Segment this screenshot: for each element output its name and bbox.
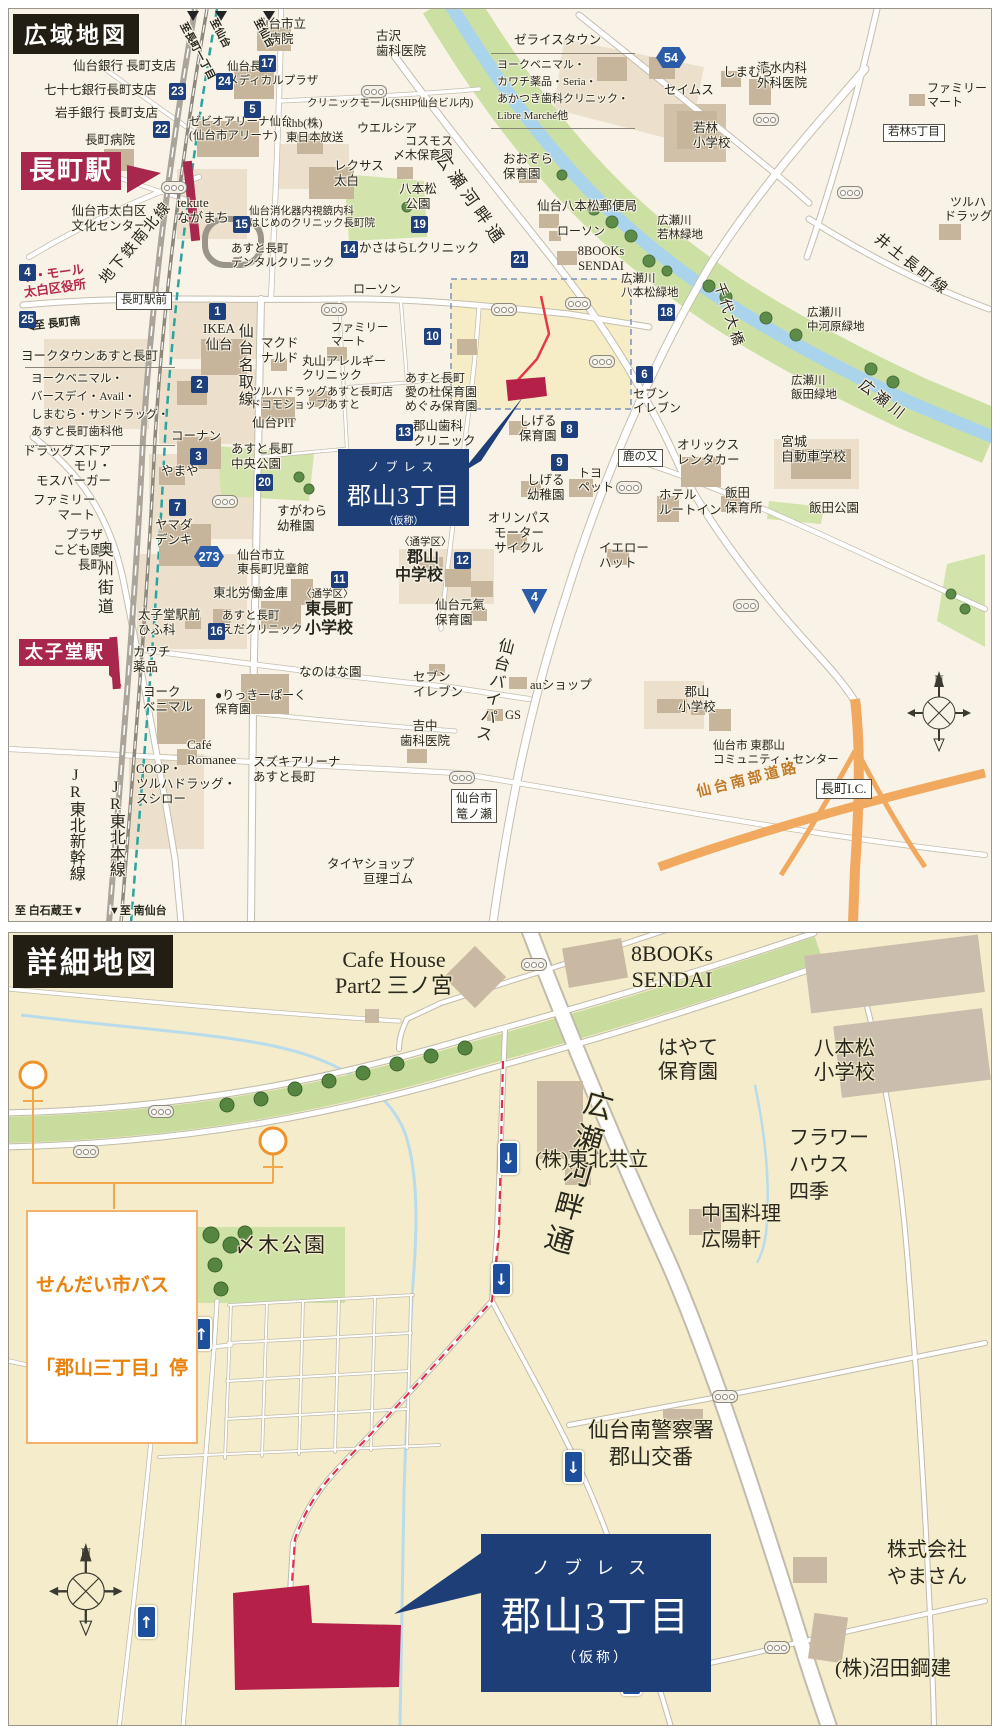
- map-label: ホテル ルートイン: [659, 488, 722, 518]
- map-label: 七十七銀行長町支店: [44, 83, 157, 98]
- map-label: 中学校: [395, 567, 443, 586]
- svg-text:N: N: [934, 672, 944, 687]
- map-label: セブン イレブン: [633, 387, 681, 415]
- map-number-badge: 24: [216, 73, 233, 90]
- map-label: 8BOOKs SENDAI: [571, 244, 631, 274]
- map-label: レクサス 太白: [334, 159, 384, 189]
- map-label: JR東北新幹線: [65, 767, 84, 881]
- map-label: ヨーク ベニマル: [143, 685, 193, 715]
- map-label: マクド ナルド: [261, 336, 299, 366]
- map-number-badge: 19: [411, 216, 428, 233]
- map-label: ●りっきーぱーく 保育園: [215, 688, 306, 716]
- traffic-signal-icon: [589, 355, 615, 368]
- traffic-signal-icon: [491, 303, 517, 316]
- map-label: 仙台元氣 保育園: [435, 598, 485, 628]
- map-label: フラワー ハウス 四季: [789, 1125, 869, 1206]
- map-label: ファミリー マート: [33, 493, 95, 523]
- map-label: ツルハ ドラッグ: [939, 195, 992, 223]
- detail-map: N 詳細地図 せんだい市バス 「郡山三丁目」停 ノブレス 郡山3丁目 （仮称） …: [8, 932, 992, 1726]
- map-number-badge: 5: [244, 101, 261, 118]
- map-label: ローソン: [557, 224, 605, 238]
- nagamachi-station-label: 長町駅: [21, 152, 121, 190]
- bus-stop-circle: [20, 1062, 46, 1088]
- map-label: ヨークベニマル・ カワチ薬品・Seria・ あかつき歯科クリニック・ Libre…: [491, 53, 635, 129]
- map-label: 仙台市立 東長町児童館: [237, 548, 309, 576]
- site-name: 郡山3丁目: [338, 476, 469, 511]
- map-label: 若林 小学校: [693, 121, 731, 151]
- map-number-badge: 17: [259, 55, 276, 72]
- map-label: 八本松 小学校: [797, 1037, 892, 1085]
- svg-text:N: N: [80, 1546, 91, 1562]
- taishido-station-label: 太子堂駅: [19, 639, 111, 666]
- traffic-signal-icon: [321, 303, 347, 316]
- map-label: 郡山 小学校: [671, 685, 723, 715]
- traffic-signal-icon: [837, 186, 863, 199]
- map-label: 宮城 自動車学校: [781, 434, 846, 465]
- map-label: khb(株) 東日本放送: [286, 118, 344, 145]
- map-label: 長町I.C.: [816, 779, 872, 799]
- map-label: ヤマダ デンキ: [155, 518, 193, 548]
- detail-map-title: 詳細地図: [13, 935, 173, 988]
- map-label: 〆木公園: [235, 1233, 327, 1258]
- bus-stop-line2: 「郡山三丁目」停: [36, 1355, 188, 1383]
- map-label: ゼライスタウン: [514, 33, 601, 48]
- wide-area-map: N 広域地図 長町駅 太子堂駅 ノブレス 郡山3丁目 （仮称） 仙台銀行 長町支…: [8, 8, 992, 922]
- map-label: 東北労働金庫: [213, 586, 288, 601]
- map-label: あすと長町 デンタルクリニック: [231, 243, 335, 270]
- site-name: 郡山3丁目: [481, 1584, 711, 1642]
- traffic-signal-icon: [712, 1390, 738, 1403]
- map-label: 奥州街道: [93, 541, 112, 617]
- traffic-signal-icon: [616, 481, 642, 494]
- page: N 広域地図 長町駅 太子堂駅 ノブレス 郡山3丁目 （仮称） 仙台銀行 長町支…: [0, 0, 1000, 1734]
- traffic-signal-icon: [361, 85, 387, 98]
- map-label: スズキアリーナ あすと長町: [253, 755, 341, 785]
- one-way-arrow-sign: ↓: [498, 1141, 519, 1175]
- map-label: 長町病院: [85, 133, 135, 148]
- map-label: 飯田 保育所: [725, 486, 763, 516]
- map-number-badge: 22: [153, 121, 170, 138]
- map-label: おおぞら 保育園: [503, 152, 553, 182]
- map-label: ファミリー マート: [331, 322, 389, 349]
- map-label: 古沢 歯科医院: [376, 29, 426, 59]
- map-label: 仙台消化器内視鏡内科 はじめのクリニック長町院: [249, 206, 375, 231]
- map-label: カワチ 薬品: [133, 645, 171, 675]
- map-number-badge: 20: [256, 474, 273, 491]
- map-label: 8BOOKs SENDAI: [617, 941, 727, 993]
- map-label: イエロー ハット: [599, 541, 649, 571]
- map-label: 東長町 小学校: [297, 601, 361, 639]
- map-number-badge: 18: [658, 304, 675, 321]
- map-label: 仙台銀行 長町支店: [73, 59, 176, 74]
- map-label: 〈通学区〉: [399, 537, 452, 549]
- site-name-suffix: （仮称）: [481, 1647, 711, 1667]
- map-label: ゼビオアリーナ仙台 (仙台市アリーナ): [189, 116, 293, 143]
- map-label: やまや: [161, 464, 199, 479]
- map-number-badge: 1: [209, 303, 226, 320]
- one-way-arrow-sign: ↓: [563, 1450, 584, 1484]
- map-label: オリックス レンタカー: [677, 438, 740, 468]
- map-label: 至 白石蔵王▼: [15, 905, 84, 918]
- map-label: 広瀬川 若林緑地: [657, 215, 703, 242]
- map-number-badge: 13: [396, 424, 413, 441]
- map-label: なのはな園: [299, 665, 362, 680]
- site-name-kana: ノブレス: [338, 458, 469, 475]
- map-number-badge: 11: [331, 571, 348, 588]
- site-callout-detail: ノブレス 郡山3丁目 （仮称）: [481, 1534, 711, 1692]
- traffic-signal-icon: [753, 113, 779, 126]
- site-name-kana: ノブレス: [481, 1554, 711, 1580]
- map-label: JR東北本線: [105, 779, 124, 877]
- map-number-badge: 10: [424, 328, 441, 345]
- map-label: 丸山アレルギー クリニック: [302, 354, 386, 382]
- map-label: あすと長町 愛の杜保育園 めぐみ保育園: [405, 371, 477, 413]
- map-label: しげる 幼稚園: [527, 473, 565, 503]
- map-label: 中国料理 広陽軒: [701, 1201, 781, 1253]
- map-label: ローソン: [353, 282, 401, 296]
- map-label: tekute ながまち: [177, 195, 229, 226]
- map-label: あすと長町 中央公園: [231, 442, 294, 472]
- map-label: ヨークタウンあすと長町: [21, 349, 158, 364]
- map-number-badge: 12: [454, 552, 471, 569]
- one-way-arrow-sign: ↓: [491, 1262, 512, 1296]
- map-label: かさはらLクリニック: [359, 241, 479, 256]
- bus-stop-line1: せんだい市バス: [36, 1272, 188, 1300]
- map-number-badge: 9: [551, 454, 568, 471]
- map-label: GS: [505, 708, 521, 723]
- traffic-signal-icon: [565, 297, 591, 310]
- map-label: はやて 保育園: [643, 1037, 733, 1084]
- map-label: 八本松 公園: [393, 182, 443, 212]
- bus-stop-callout: せんだい市バス 「郡山三丁目」停: [26, 1210, 198, 1444]
- traffic-signal-icon: [764, 1641, 790, 1654]
- map-label: 長町駅前: [116, 292, 172, 310]
- map-label: 岩手銀行 長町支店: [55, 106, 158, 121]
- map-label: タイヤショップ 亘理ゴム: [327, 857, 413, 887]
- map-label: 鹿の又: [618, 449, 663, 467]
- map-label: トヨ ペット: [578, 466, 614, 494]
- map-label: コーナン: [171, 429, 221, 444]
- map-label: セイムス: [664, 83, 714, 98]
- map-label: 郡山: [407, 549, 439, 568]
- map-number-badge: 7: [169, 499, 186, 516]
- traffic-signal-icon: [73, 1145, 99, 1158]
- traffic-signal-icon: [733, 599, 759, 612]
- map-label: すがわら 幼稚園: [277, 504, 327, 534]
- map-label: (株)沼田鋼建: [835, 1657, 951, 1681]
- map-label: ヨークベニマル・ バースデイ・Avail・ しまむら・サンドラッグ・ あすと長町…: [25, 367, 175, 446]
- map-label: ドラッグストア モリ・ モスバーガー: [17, 444, 111, 488]
- map-number-badge: 14: [341, 241, 358, 258]
- map-number-badge: 23: [169, 83, 186, 100]
- map-label: auショップ: [530, 678, 592, 693]
- traffic-signal-icon: [449, 771, 475, 784]
- map-label: 仙台八本松郵便局: [537, 199, 637, 214]
- map-label: 仙台市 東郡山 コミュニティ・センター: [713, 740, 839, 767]
- traffic-signal-icon: [521, 958, 547, 971]
- map-label: 株式会社 やまさん: [871, 1537, 983, 1591]
- map-number-badge: 6: [636, 366, 653, 383]
- map-label: オリンパス モーター サイクル: [487, 511, 551, 555]
- map-label: 飯田公園: [809, 501, 859, 516]
- map-label: Cafe House Part2 三ノ宮: [294, 947, 494, 999]
- one-way-arrow-sign: ↑: [136, 1605, 157, 1639]
- traffic-signal-icon: [148, 1105, 174, 1118]
- site-callout-wide: ノブレス 郡山3丁目 （仮称）: [338, 449, 469, 526]
- map-label: ツルハドラッグあすと長町店 ドコモショップあすと: [250, 386, 393, 412]
- site-name-suffix: （仮称）: [338, 512, 469, 527]
- wide-map-title: 広域地図: [13, 14, 139, 54]
- map-label: 若林5丁目: [883, 124, 945, 142]
- map-label: 仙台PIT: [252, 416, 296, 431]
- map-label: 太子堂駅前 ひふ科: [138, 608, 201, 638]
- map-label: ファミリー マート: [927, 81, 987, 109]
- map-label: COOP・ ツルハドラッグ・ スシロー: [136, 762, 236, 806]
- map-label: セブン イレブン: [413, 670, 463, 700]
- map-number-badge: 15: [233, 216, 250, 233]
- map-number-badge: 3: [190, 448, 207, 465]
- map-number-badge: 2: [191, 376, 208, 393]
- map-label: しまむら: [723, 65, 773, 80]
- traffic-signal-icon: [212, 495, 238, 508]
- map-label: 〈通学区〉: [301, 589, 354, 601]
- map-label: ▼至 南仙台: [109, 905, 167, 918]
- map-label: 広瀬川 八本松緑地: [621, 273, 679, 300]
- map-label: 吉中 歯科医院: [393, 719, 457, 749]
- map-number-badge: 21: [511, 251, 528, 268]
- map-label: 広瀬川 中河原緑地: [807, 307, 865, 334]
- map-number-badge: 25: [19, 311, 36, 328]
- map-label: 広瀬川 飯田緑地: [791, 375, 837, 402]
- map-number-badge: 4: [19, 264, 36, 281]
- map-label: 仙台市 篭ノ瀬: [451, 789, 497, 823]
- map-number-badge: 16: [208, 623, 225, 640]
- traffic-signal-icon: [161, 181, 187, 194]
- bus-stop-circle: [260, 1128, 286, 1154]
- map-label: しげる 保育園: [519, 414, 557, 444]
- map-number-badge: 8: [561, 421, 578, 438]
- map-label: あすと長町 えだクリニック: [222, 610, 303, 637]
- map-label: (株)東北共立: [535, 1149, 648, 1173]
- map-label: 郡山歯科 クリニック: [413, 419, 476, 449]
- map-label: クリニックモール(SHIP仙台ビル内): [307, 98, 473, 110]
